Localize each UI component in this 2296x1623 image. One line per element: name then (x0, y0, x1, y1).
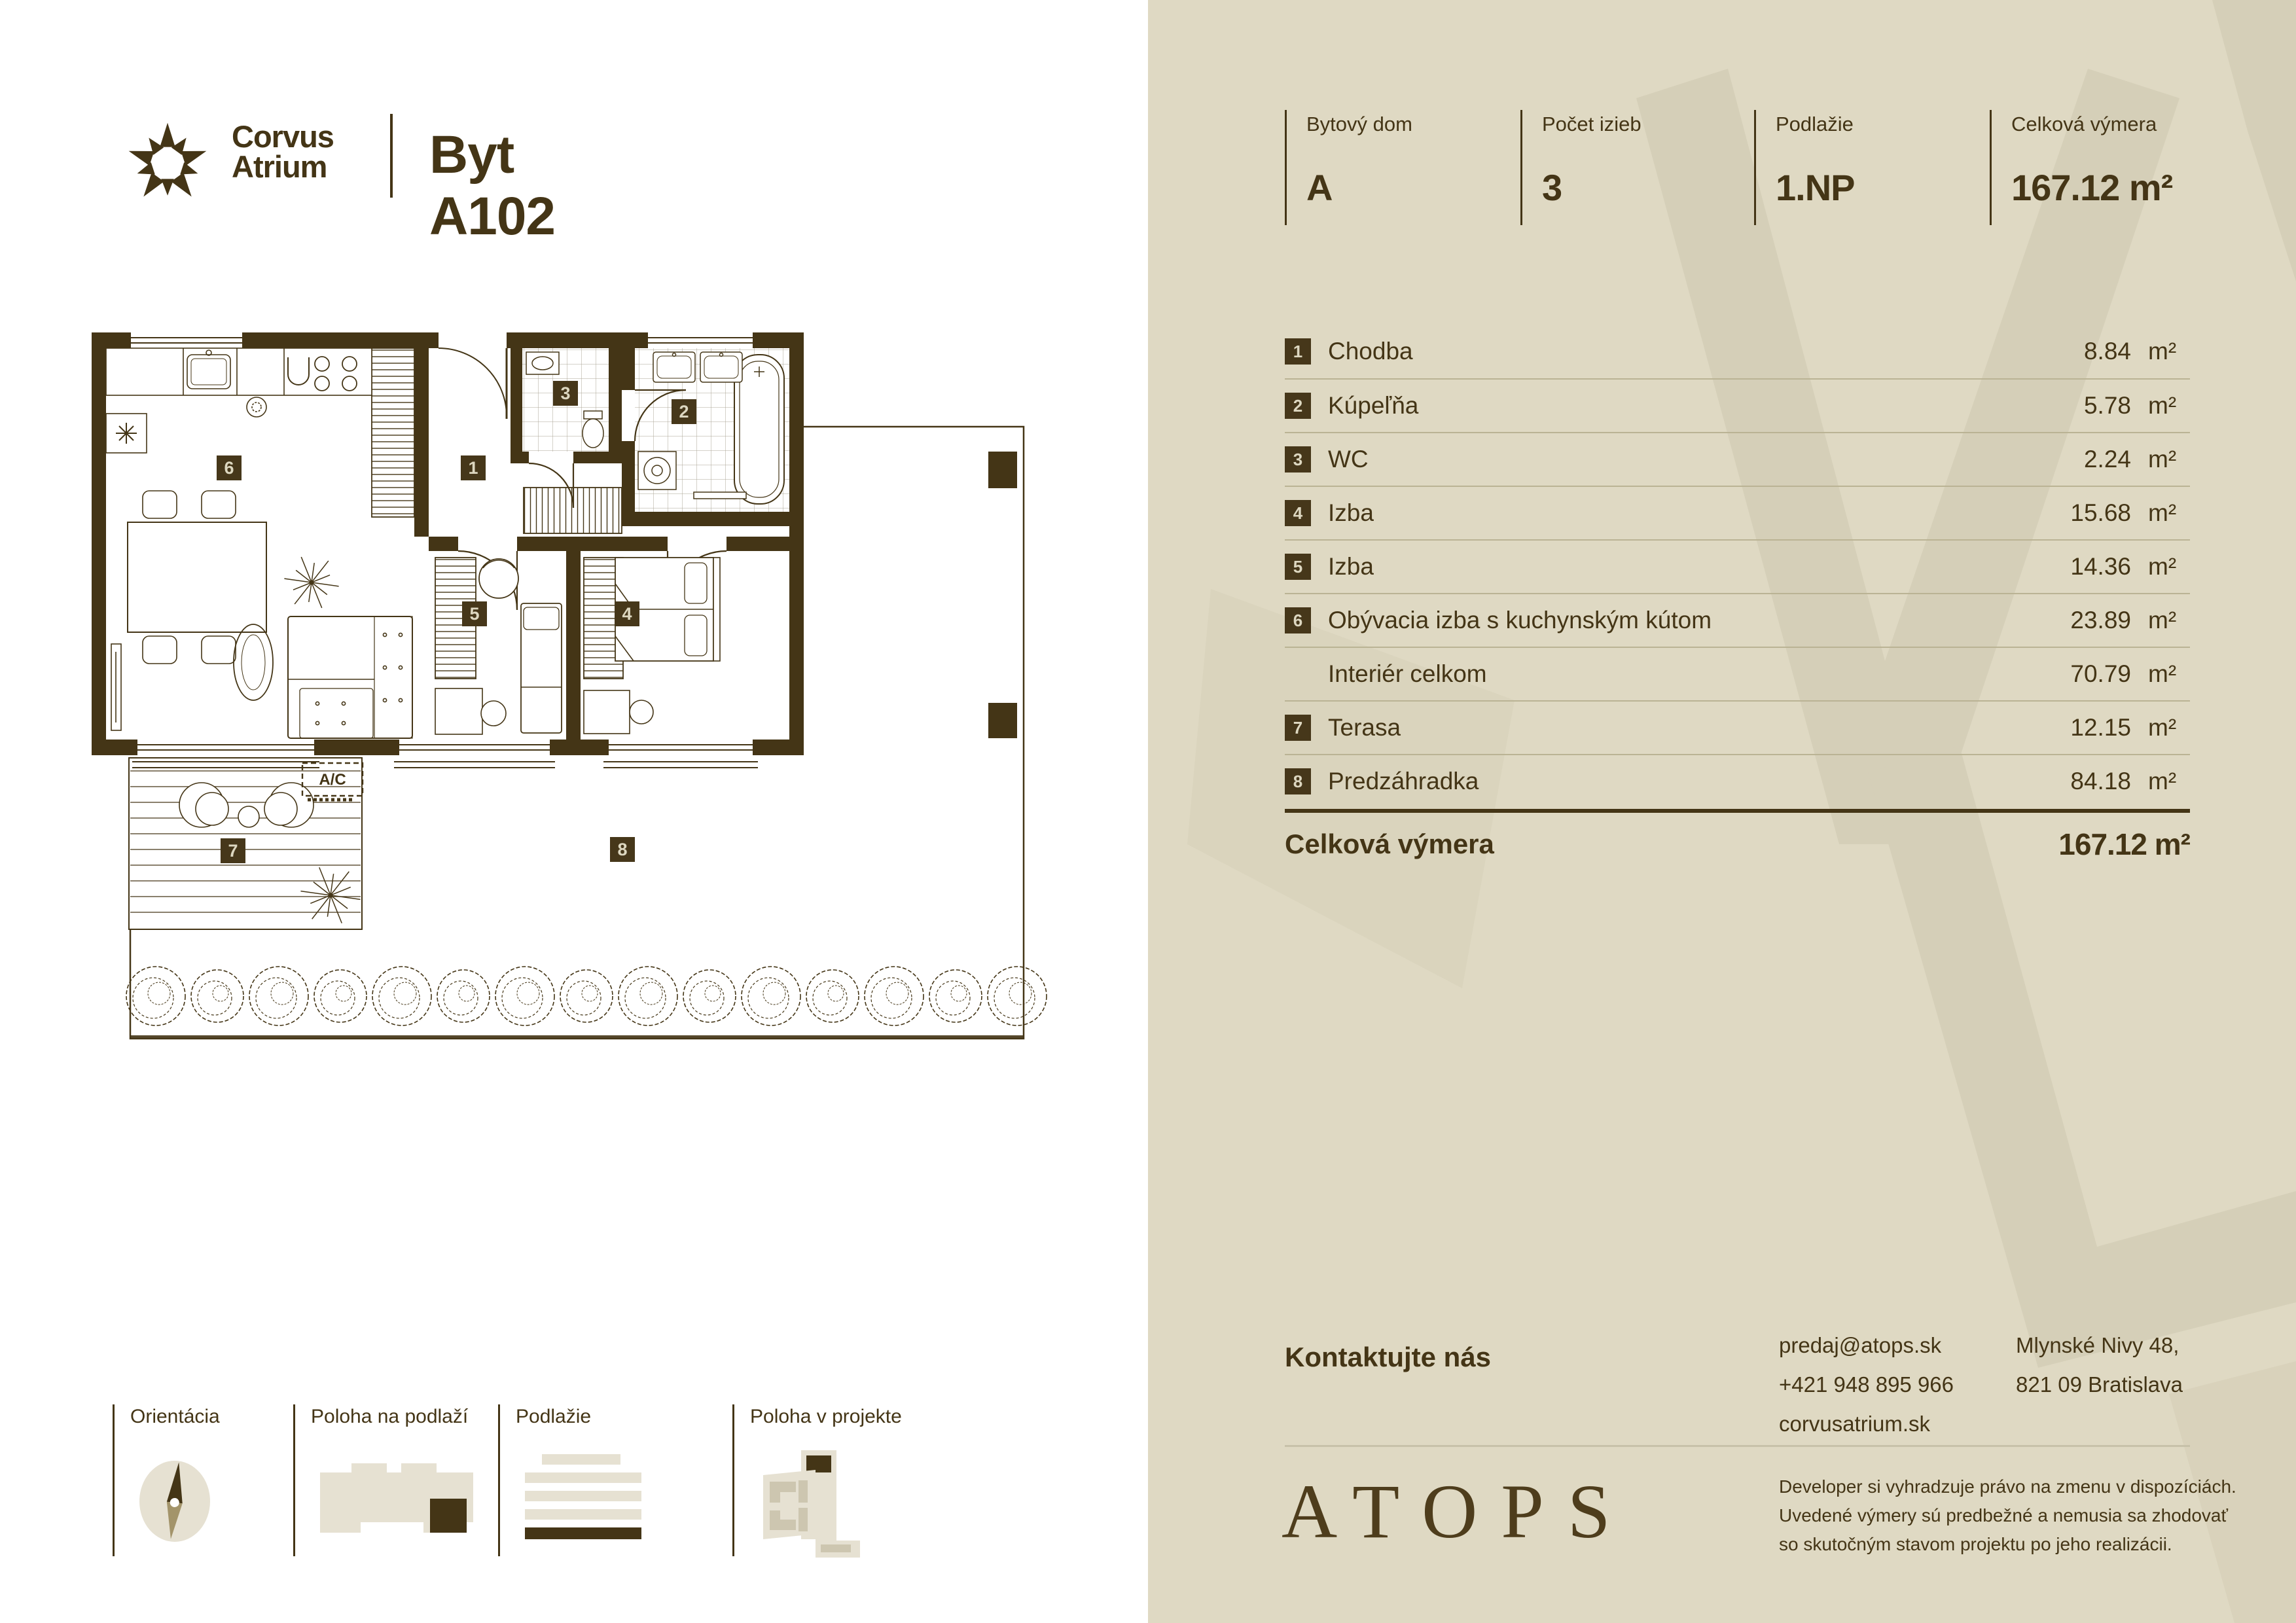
brand-name: Corvus Atrium (232, 122, 334, 182)
legend-project-position: Poloha v projekte (732, 1404, 1014, 1556)
legend-label: Podlažie (516, 1404, 708, 1428)
legend-label: Poloha na podlaží (311, 1404, 483, 1428)
project-position-icon (750, 1448, 894, 1559)
row-area-value: 14.36 (2070, 553, 2131, 580)
total-row: Celková výmera 167.12 m² (1285, 813, 2190, 876)
svg-text:5: 5 (469, 604, 479, 624)
table-row: 7Terasa12.15m² (1285, 700, 2190, 754)
stat-label: Celková výmera (2011, 113, 2196, 136)
kitchen-sink (187, 355, 230, 389)
terrace-lounge-chairs (179, 783, 314, 827)
row-number-badge: 1 (1285, 338, 1311, 365)
floor-position-icon (311, 1448, 481, 1552)
row-number-badge: 4 (1285, 500, 1311, 526)
row-area-value: 12.15 (2070, 714, 2131, 741)
row-room-name: Izba (1328, 499, 2070, 527)
row-area-value: 5.78 (2084, 392, 2131, 419)
stat-total-area: Celková výmera 167.12 m² (1990, 110, 2196, 225)
garden-bushes (126, 967, 1047, 1026)
row-area-unit: m² (2148, 392, 2190, 419)
stat-floor: Podlažie 1.NP (1754, 110, 1990, 225)
unit-title: Byt A102 (429, 124, 555, 247)
svg-text:A/C: A/C (319, 771, 346, 789)
total-label: Celková výmera (1285, 829, 2058, 860)
plant-icon (300, 867, 360, 923)
ac-unit: A/C (302, 763, 363, 800)
svg-text:1: 1 (468, 458, 478, 478)
row-area-unit: m² (2148, 768, 2190, 795)
bed-single (521, 603, 562, 733)
stat-value: 3 (1542, 166, 1754, 209)
row-area-value: 84.18 (2070, 768, 2131, 795)
table-row: 5Izba14.36m² (1285, 539, 2190, 593)
row-area-unit: m² (2148, 338, 2190, 365)
stat-label: Počet izieb (1542, 113, 1754, 136)
left-page: Corvus Atrium Byt A102 (0, 0, 1148, 1623)
row-number-badge: 7 (1285, 715, 1311, 741)
stat-label: Bytový dom (1306, 113, 1520, 136)
total-value: 167.12 m² (2058, 827, 2190, 862)
row-room-name: Obývacia izba s kuchynským kútom (1328, 607, 2070, 634)
row-room-name: Predzáhradka (1328, 768, 2070, 795)
row-room-name: Terasa (1328, 714, 2070, 741)
stat-rooms: Počet izieb 3 (1520, 110, 1754, 225)
table-row: 2Kúpeľňa5.78m² (1285, 378, 2190, 432)
corvus-logo-icon (117, 113, 219, 215)
row-area-value: 23.89 (2070, 607, 2131, 634)
wall-right (789, 332, 804, 755)
row-room-name: Chodba (1328, 338, 2084, 365)
page: { "brand": { "name_line1": "Corvus", "na… (0, 0, 2296, 1623)
svg-text:4: 4 (622, 604, 632, 624)
armchair (479, 559, 518, 598)
row-area-unit: m² (2148, 607, 2190, 634)
table-row: 6Obývacia izba s kuchynským kútom23.89m² (1285, 593, 2190, 647)
row-number-badge: 5 (1285, 554, 1311, 580)
row-area-unit: m² (2148, 714, 2190, 741)
table-row: 3WC2.24m² (1285, 432, 2190, 486)
row-area-unit: m² (2148, 446, 2190, 473)
stat-value: 1.NP (1776, 166, 1990, 209)
desk-chair (630, 700, 653, 724)
brand-name-line2: Atrium (232, 152, 334, 182)
brand-divider (390, 114, 393, 198)
table-row: Interiér celkom70.79m² (1285, 647, 2190, 700)
stat-building: Bytový dom A (1285, 110, 1520, 225)
row-number-badge: 3 (1285, 446, 1311, 473)
row-room-name: Kúpeľňa (1328, 392, 2084, 419)
window (132, 740, 758, 768)
svg-text:3: 3 (560, 383, 570, 403)
garden-pillar (988, 703, 1017, 738)
row-area-unit: m² (2148, 660, 2190, 688)
compass-icon (130, 1448, 235, 1552)
legend-orientation: Orientácia (113, 1404, 276, 1556)
floor-level-icon (516, 1448, 660, 1552)
row-number-badge: 8 (1285, 768, 1311, 794)
desk (435, 688, 482, 734)
desk (584, 690, 630, 734)
sofa (288, 616, 412, 738)
legend-floor-position: Poloha na podlaží (293, 1404, 483, 1556)
dining-table (128, 522, 266, 632)
table-row: 8Predzáhradka84.18m² (1285, 754, 2190, 808)
table-row: 4Izba15.68m² (1285, 486, 2190, 539)
stat-label: Podlažie (1776, 113, 1990, 136)
legend-label: Orientácia (130, 1404, 276, 1428)
legend-label: Poloha v projekte (750, 1404, 1014, 1428)
row-area-value: 15.68 (2070, 499, 2131, 527)
row-area-value: 8.84 (2084, 338, 2131, 365)
row-room-name: WC (1328, 446, 2084, 473)
desk-chair (481, 701, 506, 726)
svg-text:6: 6 (224, 458, 234, 478)
svg-text:7: 7 (228, 841, 238, 861)
area-table: 1Chodba8.84m²2Kúpeľňa5.78m²3WC2.24m²4Izb… (1285, 325, 2190, 876)
row-area-value: 2.24 (2084, 446, 2131, 473)
svg-text:8: 8 (617, 840, 627, 859)
garden-edge (130, 1035, 1024, 1039)
garden-pillar (988, 452, 1017, 488)
legend-floor-level: Podlažie (498, 1404, 708, 1556)
row-room-name: Izba (1328, 553, 2070, 580)
footer-legend: Orientácia Poloha na podlaží Podlažie (0, 1404, 1148, 1575)
row-area-unit: m² (2148, 553, 2190, 580)
row-room-name: Interiér celkom (1328, 660, 2070, 688)
unit-stats: Bytový dom A Počet izieb 3 Podlažie 1.NP… (1285, 110, 2196, 225)
svg-text:2: 2 (679, 402, 689, 421)
row-number-badge: 2 (1285, 393, 1311, 419)
table-row: 1Chodba8.84m² (1285, 325, 2190, 378)
brand-name-line1: Corvus (232, 122, 334, 152)
right-panel: Bytový dom A Počet izieb 3 Podlažie 1.NP… (1148, 0, 2296, 1623)
wall-left (92, 332, 106, 755)
area-table-rows: 1Chodba8.84m²2Kúpeľňa5.78m²3WC2.24m²4Izb… (1285, 325, 2190, 808)
row-area-unit: m² (2148, 499, 2190, 527)
stat-value: 167.12 m² (2011, 166, 2196, 209)
row-area-value: 70.79 (2070, 660, 2131, 688)
stat-value: A (1306, 166, 1520, 209)
row-number-badge: 6 (1285, 607, 1311, 633)
floorplan: A/C (92, 321, 1047, 1050)
